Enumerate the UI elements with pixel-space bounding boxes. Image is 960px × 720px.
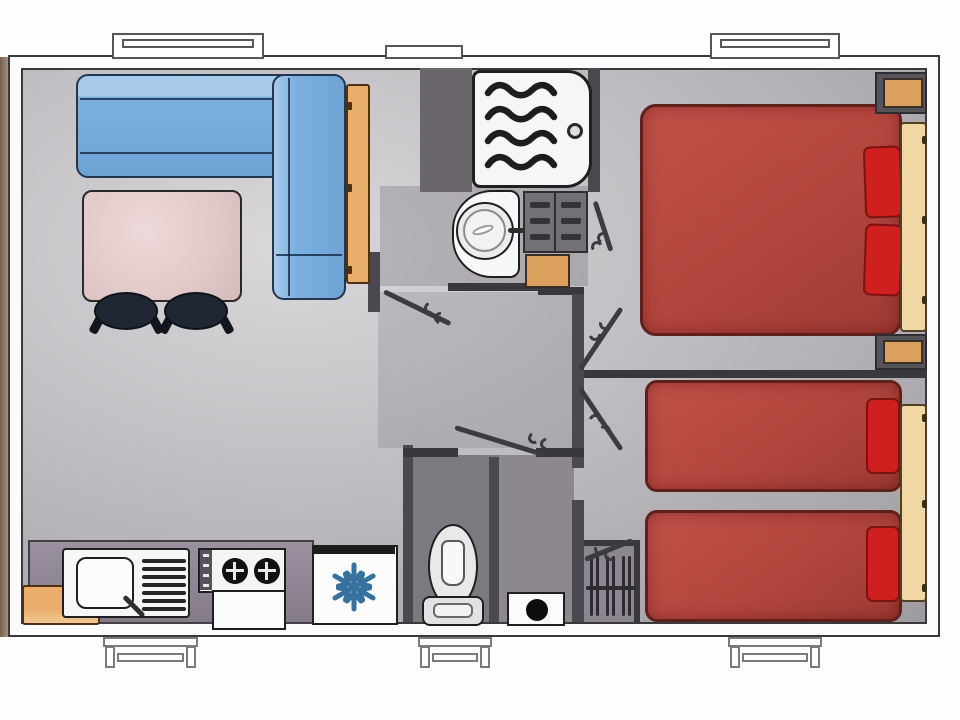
wall-bedroom-divider <box>584 370 927 378</box>
dining-table <box>82 190 242 302</box>
single-bed-top-pillow <box>866 398 900 474</box>
entry-step-3 <box>728 637 822 668</box>
sink-drainer <box>142 559 186 611</box>
roof-vent <box>385 45 463 59</box>
fridge-top-band <box>313 546 395 554</box>
wall-nook-right <box>572 500 584 622</box>
oven-front <box>212 590 286 630</box>
entry-step-2 <box>418 637 492 668</box>
nightstand-top <box>875 72 927 114</box>
double-bed-pillow-top <box>863 145 903 218</box>
stove-control-strip <box>200 550 212 590</box>
washbasin-bowl <box>456 202 514 260</box>
floor-plan-canvas <box>0 0 960 720</box>
bathroom-drawer-cabinet <box>523 191 588 253</box>
stool-1 <box>94 292 158 330</box>
snowflake-icon <box>327 560 381 614</box>
wall-hallway-bedrooms <box>572 294 584 468</box>
twin-beds-shared-headboard <box>900 404 927 602</box>
wall-living-shower <box>420 68 472 192</box>
nightstand-bottom <box>875 334 927 370</box>
water-heater-port <box>526 599 548 621</box>
water-heater <box>507 592 565 626</box>
drain-circle-icon <box>567 123 583 139</box>
wavy-water-lines-icon <box>483 81 561 177</box>
sofa-chaise-section <box>272 74 346 300</box>
tall-wardrobe <box>346 84 370 284</box>
wall-wc-right <box>489 457 499 622</box>
double-bed-pillow-bottom <box>863 223 903 296</box>
single-bed-bottom-mattress <box>645 510 902 622</box>
single-bed-top-mattress <box>645 380 902 492</box>
entry-step-1 <box>103 637 198 668</box>
single-bed-bottom-pillow <box>866 526 900 602</box>
window-top-left-frame <box>122 39 254 48</box>
closet-shelf-bar <box>586 586 636 590</box>
double-bed-mattress <box>640 104 902 336</box>
wall-closet-right <box>634 540 640 622</box>
stove-hob <box>198 548 286 593</box>
shower-tray <box>472 70 592 188</box>
stool-2 <box>164 292 228 330</box>
fridge <box>312 545 398 625</box>
double-bed-headboard <box>900 122 927 332</box>
wall-wc-left <box>403 445 413 622</box>
kitchen-sink-unit <box>62 548 190 618</box>
wall-wc-top-a <box>403 448 458 457</box>
bathroom-storage-cube <box>525 254 570 288</box>
toilet-tank <box>422 596 484 626</box>
window-top-right-frame <box>720 39 830 48</box>
